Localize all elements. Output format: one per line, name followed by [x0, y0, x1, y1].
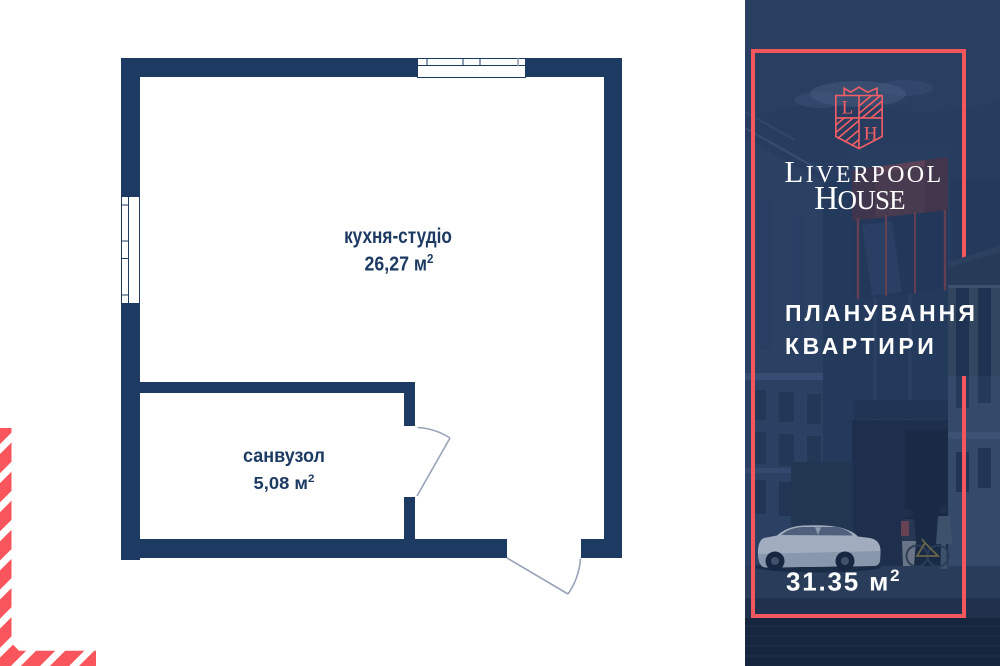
- svg-text:H: H: [864, 124, 878, 145]
- svg-text:L: L: [842, 98, 854, 119]
